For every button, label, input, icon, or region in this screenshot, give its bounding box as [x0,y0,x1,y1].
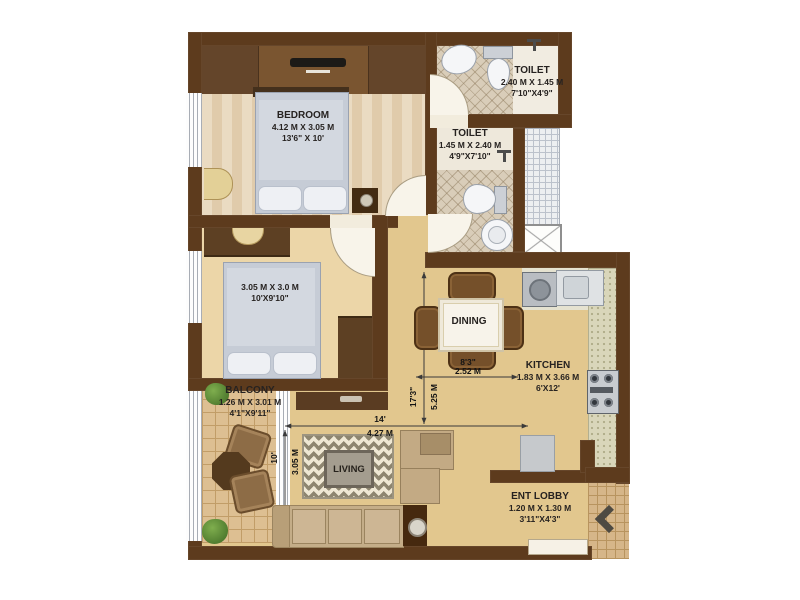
room-metric: 4.12 M X 3.05 M [245,122,361,133]
room-imperial: 13'6" X 10' [245,133,361,144]
room-imperial: 10'X9'10" [212,293,328,304]
wardrobe-end-right [368,46,426,94]
chaise-icon [400,468,440,504]
bedroom-top-window [186,93,202,167]
dim-living-depth-m: 3.05 M [290,440,300,484]
room-metric: 2.40 M X 1.45 M [480,77,584,88]
washbasin-bowl [488,226,506,244]
balcony-railing [186,391,202,541]
room-name: TOILET [418,127,522,140]
bedroom-mid-window [186,251,202,323]
tv-remote [340,396,362,402]
room-imperial: 7'10"X4'9" [480,88,584,99]
dim-living-depth-ft: 10' [269,436,279,480]
wall-top [190,32,572,46]
room-metric: 1.26 M X 3.01 M [206,397,294,408]
sofa-cushion [292,509,326,544]
kitchen-sink-bowl [563,276,589,299]
bedroom-mid-label: 3.05 M X 3.0 M 10'X9'10" [212,282,328,304]
main-door-leaf [528,539,588,555]
sofa-armrest [272,505,290,548]
pillow-icon [273,352,317,375]
dining-label: DINING [439,315,499,328]
wardrobe-end-left [202,46,259,94]
room-name: BEDROOM [245,109,361,122]
dim-living-width-ft: 14' [358,414,402,424]
washing-machine-drum [529,279,551,301]
lamp-icon [360,194,373,207]
lamp-icon [408,518,427,537]
burner-icon [604,374,613,383]
room-metric: 1.45 M X 2.40 M [418,140,522,151]
room-metric: 3.05 M X 3.0 M [212,282,328,293]
wall-kitchen-top [425,252,630,268]
burner-icon [604,398,613,407]
sofa-cushion [364,509,400,544]
pillow-icon [258,186,302,211]
shower-icon [527,39,541,42]
room-name: TOILET [480,64,584,77]
dim-dining-m: 2.52 M [446,366,490,376]
burner-icon [590,398,599,407]
floor-plan: LIVING BEDROOM 4.12 M X 3.05 M 13'6" X 1… [0,0,800,600]
living-rug-panel: LIVING [324,450,374,488]
toilet-mid-label: TOILET 1.45 M X 2.40 M 4'9"X7'10" [418,127,522,162]
chaise-cushion [420,433,451,455]
room-metric: 1.83 M X 3.66 M [500,372,596,383]
room-name: BALCONY [206,384,294,397]
room-imperial: 3'11"X4'3" [488,514,592,525]
tv-icon [290,58,346,67]
kitchen-label: KITCHEN 1.83 M X 3.66 M 6'X12' [500,359,596,394]
dim-passage-m: 5.25 M [429,375,439,419]
living-label: LIVING [333,464,365,475]
room-imperial: 4'9"X7'10" [418,151,522,162]
dim-passage-ft: 17'3" [408,375,418,419]
room-metric: 1.20 M X 1.30 M [488,503,592,514]
sofa-cushion [328,509,362,544]
room-name: ENT LOBBY [488,490,592,503]
room-name: KITCHEN [500,359,596,372]
tv-stand-icon [306,70,330,73]
wardrobe-mid-right-icon [338,316,372,378]
bedroom-top-label: BEDROOM 4.12 M X 3.05 M 13'6" X 10' [245,109,361,144]
pillow-icon [227,352,271,375]
balcony-label: BALCONY 1.26 M X 3.01 M 4'1"X9'11" [206,384,294,419]
wall-kitchen-right [616,252,630,484]
room-imperial: 4'1"X9'11" [206,408,294,419]
bedroom-mid-door-gap [330,215,372,228]
ent-lobby-label: ENT LOBBY 1.20 M X 1.30 M 3'11"X4'3" [488,490,592,525]
pillow-icon [303,186,347,211]
dim-living-width-m: 4.27 M [358,428,402,438]
nightstand-icon [204,168,233,200]
toilet-top-door-gap [430,114,468,128]
toilet-top-label: TOILET 2.40 M X 1.45 M 7'10"X4'9" [480,64,584,99]
room-name: DINING [439,315,499,328]
wall-entry-top [585,467,630,483]
fridge-icon [520,435,555,472]
room-imperial: 6'X12' [500,383,596,394]
bed-mid-sheet [227,268,315,346]
